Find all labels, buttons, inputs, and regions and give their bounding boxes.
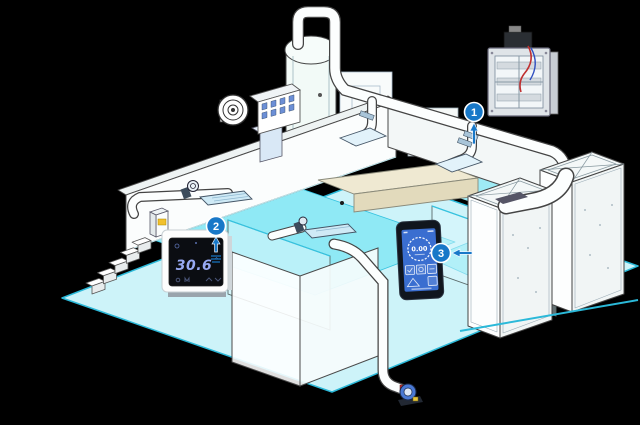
jet-motor-icon bbox=[299, 217, 307, 225]
controller-button bbox=[405, 265, 414, 274]
thermostat-temperature: 30.6 bbox=[176, 258, 213, 274]
callout-2-number: 2 bbox=[213, 221, 219, 233]
corridor-wall-left bbox=[232, 252, 300, 386]
tank-port bbox=[318, 93, 322, 97]
thermostat-degree-symbol: ° bbox=[215, 257, 218, 264]
controller-button bbox=[428, 276, 437, 285]
controller-button bbox=[416, 265, 425, 274]
sensor-label bbox=[158, 219, 166, 225]
callout-3-number: 3 bbox=[438, 248, 444, 260]
wall-thermostat: 30.6 ° bbox=[162, 230, 232, 297]
system-diagram: 30.6 ° 0.00 1 bbox=[0, 0, 640, 425]
isometric-system-illustration: 30.6 ° 0.00 1 bbox=[0, 0, 640, 425]
air-handling-unit-2 bbox=[540, 152, 624, 312]
controller-reading: 0.00 bbox=[411, 245, 428, 254]
pool-drain-dot bbox=[340, 201, 344, 205]
callout-1-number: 1 bbox=[471, 107, 477, 119]
fan-motor-icon bbox=[188, 181, 199, 192]
